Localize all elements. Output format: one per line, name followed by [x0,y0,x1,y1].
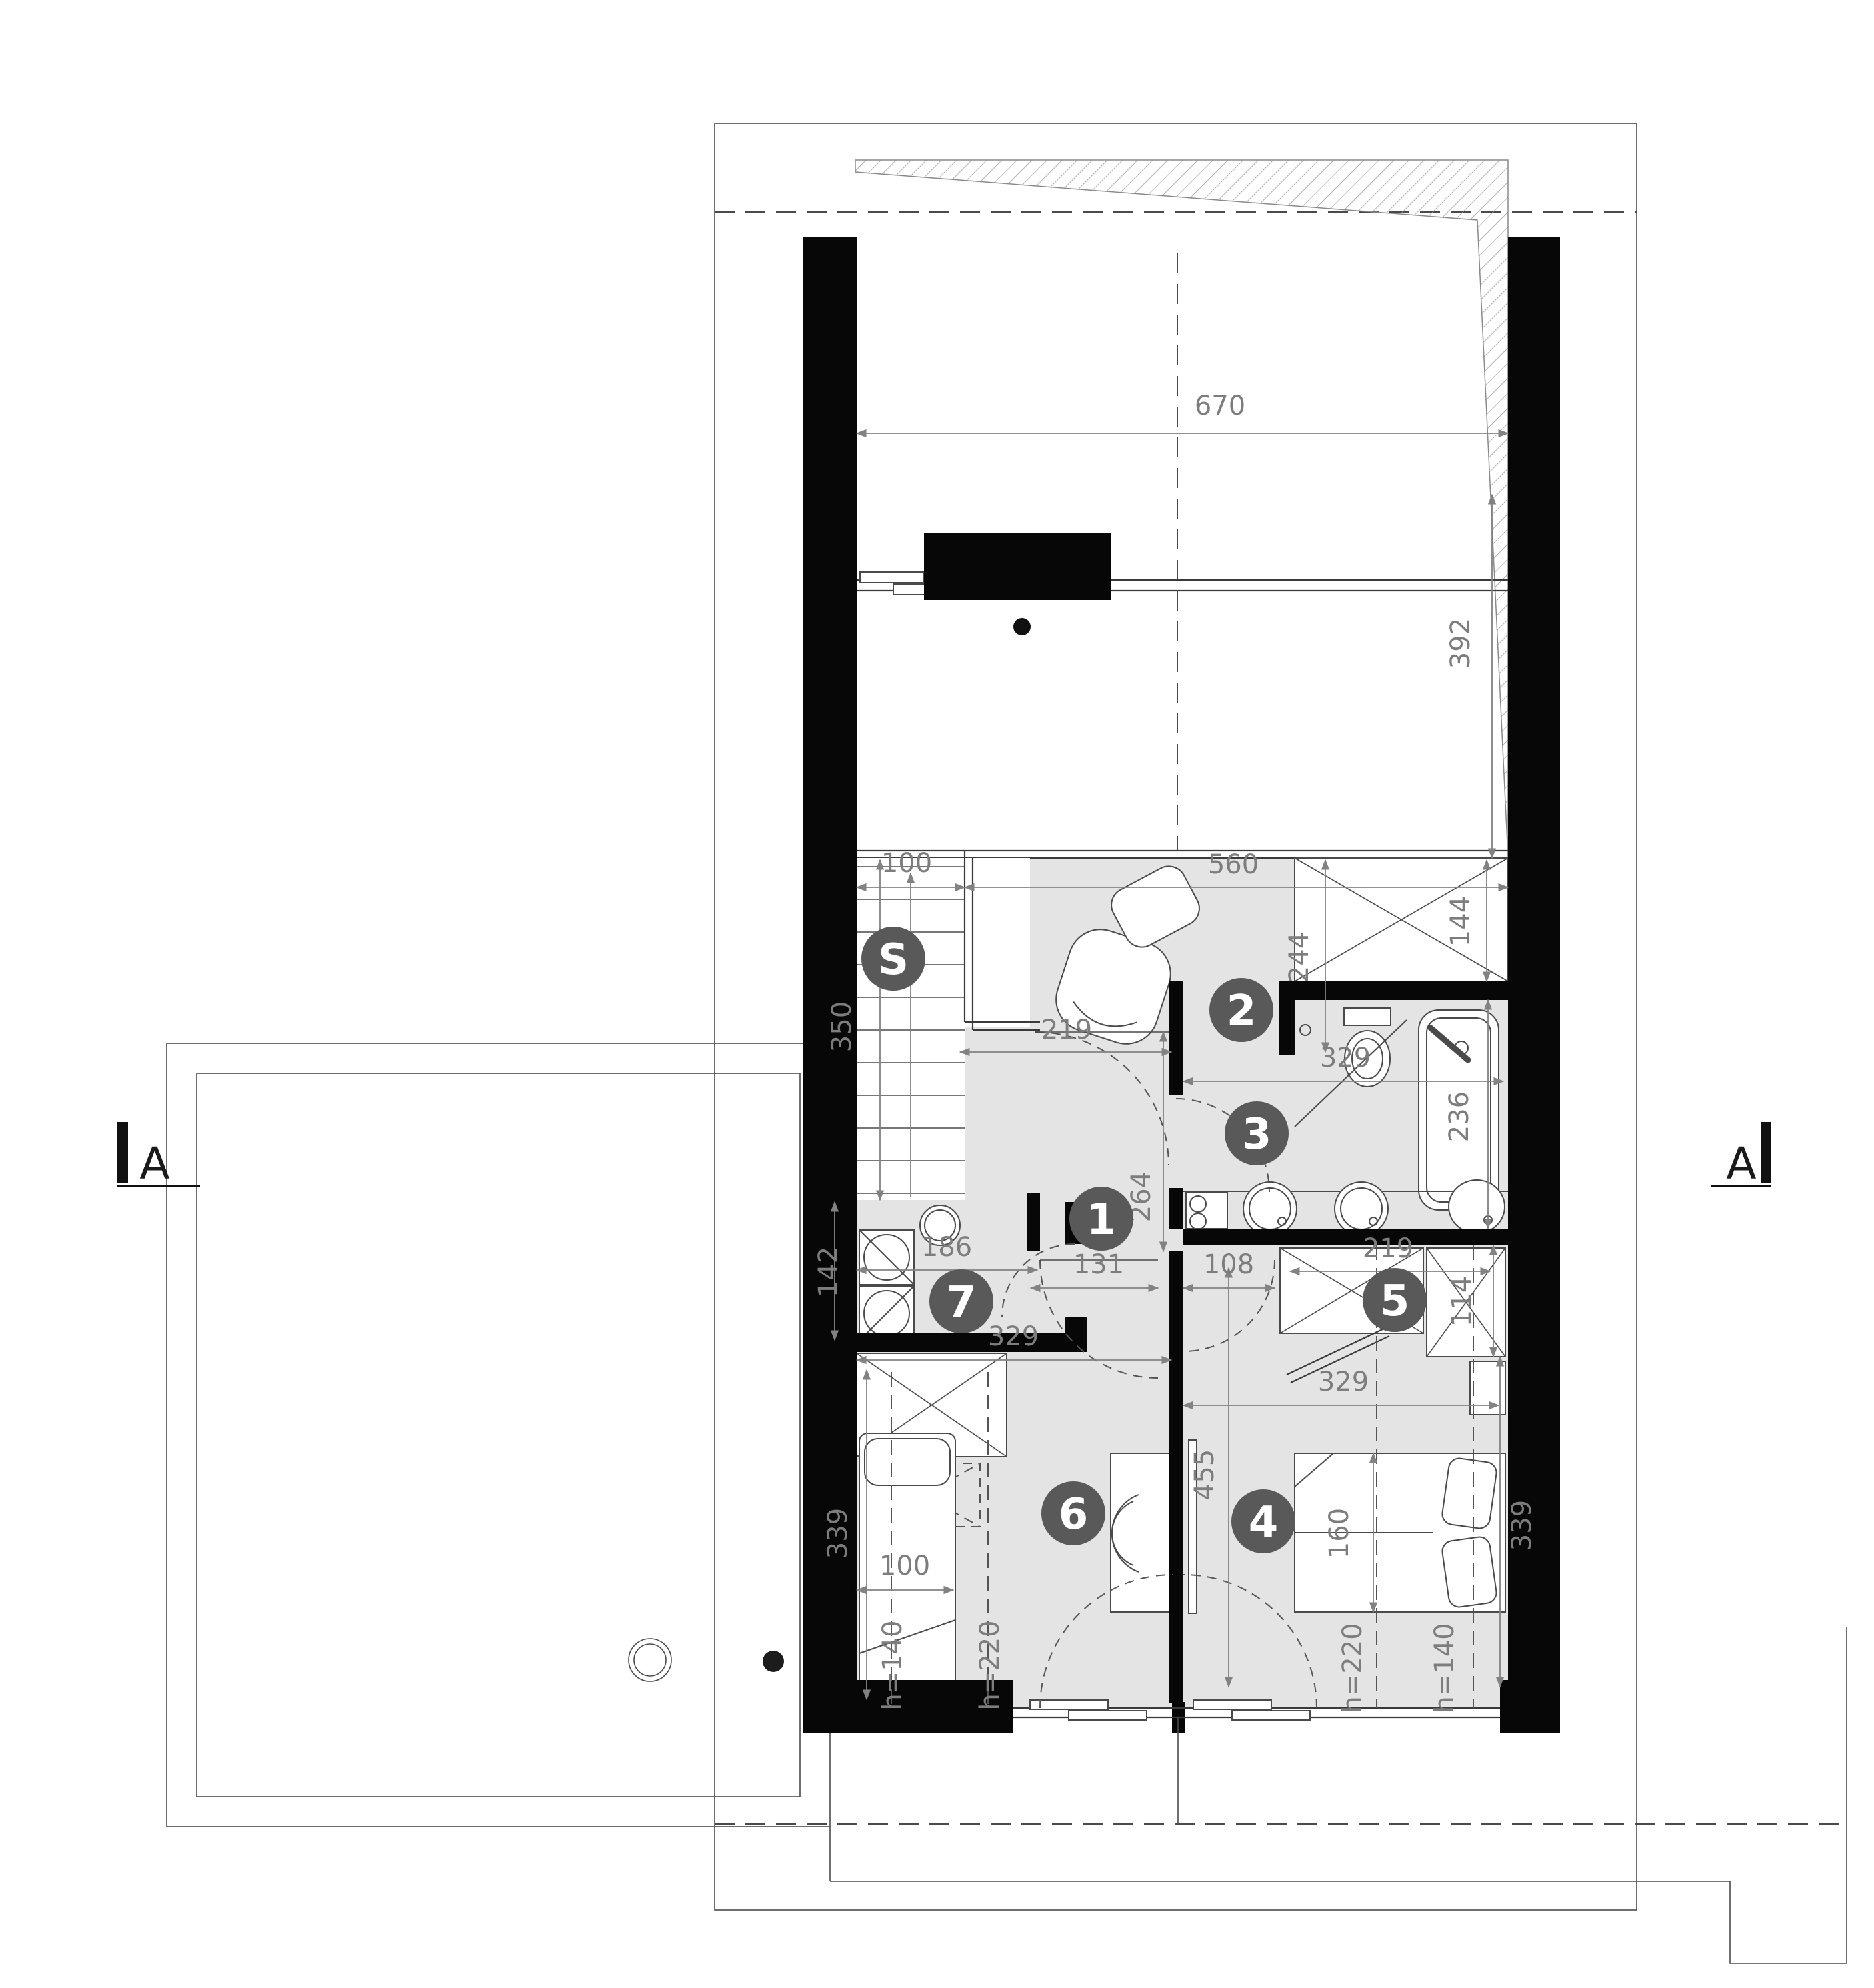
window-slider-1b [1069,1711,1147,1720]
dimension-label: 455 [1189,1449,1220,1500]
dimension-label: h=220 [1337,1623,1368,1713]
room-badge-label-5: 5 [1380,1277,1410,1326]
section-label-left: A [139,1138,169,1189]
dimension-label: 100 [879,1551,930,1581]
room-badge-label-6: 6 [1059,1490,1089,1539]
dimension-label: 100 [881,848,932,879]
dimension-label: 114 [1447,1276,1477,1327]
dimension-label: 339 [823,1508,853,1559]
dimension-label: 329 [1318,1367,1369,1397]
single-bed-pillow [865,1439,950,1485]
stair-gap [965,858,1030,1027]
wall-bottom-right [1500,1680,1560,1733]
dimension-label: 186 [921,1232,972,1263]
wall-bath-west-lower [1169,1188,1183,1229]
terrace-outer [167,1043,830,1827]
terrace-drain-icon [629,1639,671,1681]
dimension-label: 244 [1284,932,1315,983]
roof-slope [855,160,1508,858]
pillow-1 [1441,1457,1497,1529]
window-slider-1a [1030,1700,1108,1709]
chimney-block [924,533,1111,600]
downpipe-icon [763,1651,784,1672]
washbasin-1 [1243,1182,1297,1235]
wall-bath-south [1183,1229,1508,1245]
section-marker-left: A [117,1122,200,1189]
wall-bath-north [1295,981,1508,1000]
dimension-label: 392 [1445,618,1476,669]
room-badge-label-S: S [878,935,909,985]
dimension-label: 670 [1195,391,1245,421]
wall-hall-pier [1027,1193,1040,1251]
wall-bath-west-upper [1169,981,1183,1095]
window-slider-2b [1232,1711,1310,1720]
dimension-label: 219 [1363,1233,1413,1264]
room-badge-label-7: 7 [947,1278,977,1327]
slider-panel-1 [860,572,923,583]
dimension-label: 142 [813,1247,844,1297]
dimension-label: h=220 [975,1620,1005,1710]
desk [1111,1453,1169,1612]
wall-bath-nw [1279,981,1295,1055]
room-badge-label-1: 1 [1087,1195,1117,1245]
section-bar-icon [1761,1122,1771,1183]
bidet [1449,1180,1505,1233]
dimension-label: 329 [1320,1043,1371,1073]
dimension-label: h=140 [877,1620,908,1710]
dimension-label: 350 [827,1001,857,1052]
terrace [167,1043,830,1827]
neighbor-outline [830,1881,1847,1963]
section-bar-icon [117,1122,128,1183]
window-slider-2a [1193,1700,1271,1709]
void-area [857,253,1508,851]
washbasin-2 [1335,1182,1388,1235]
wall-bedroom-divider [1169,1251,1183,1703]
dimension-label: 560 [1208,849,1259,880]
toilet-cistern [1344,1008,1391,1025]
room-badge-label-4: 4 [1249,1498,1279,1547]
floor-plan-page: 6703921005601442443502193292362641311082… [0,0,1874,1988]
room-badge-label-3: 3 [1242,1110,1272,1159]
windows [1013,1700,1500,1824]
dimension-label: 131 [1073,1249,1124,1280]
dimension-label: 108 [1203,1249,1254,1280]
room-badge-label-2: 2 [1227,987,1257,1036]
dimension-label: 339 [1507,1500,1537,1551]
dimension-label: 144 [1445,896,1476,947]
section-label-right: A [1726,1138,1756,1189]
column-dot [1013,618,1031,635]
section-marker-right: A [1711,1122,1771,1189]
dimension-label: 219 [1041,1015,1092,1045]
terrace-drain-inner-icon [634,1644,666,1676]
roof-slope-hatch [855,160,1508,858]
dimension-label: 236 [1444,1091,1475,1142]
dimension-label: h=140 [1429,1623,1460,1713]
pillow-2 [1441,1535,1497,1608]
wall-room7-south [857,1333,1087,1352]
terrace-inner [197,1073,800,1797]
dimension-label: 160 [1324,1508,1355,1559]
floor-plan-drawing: 6703921005601442443502193292362641311082… [0,0,1874,1988]
dimension-label: 329 [988,1321,1039,1352]
